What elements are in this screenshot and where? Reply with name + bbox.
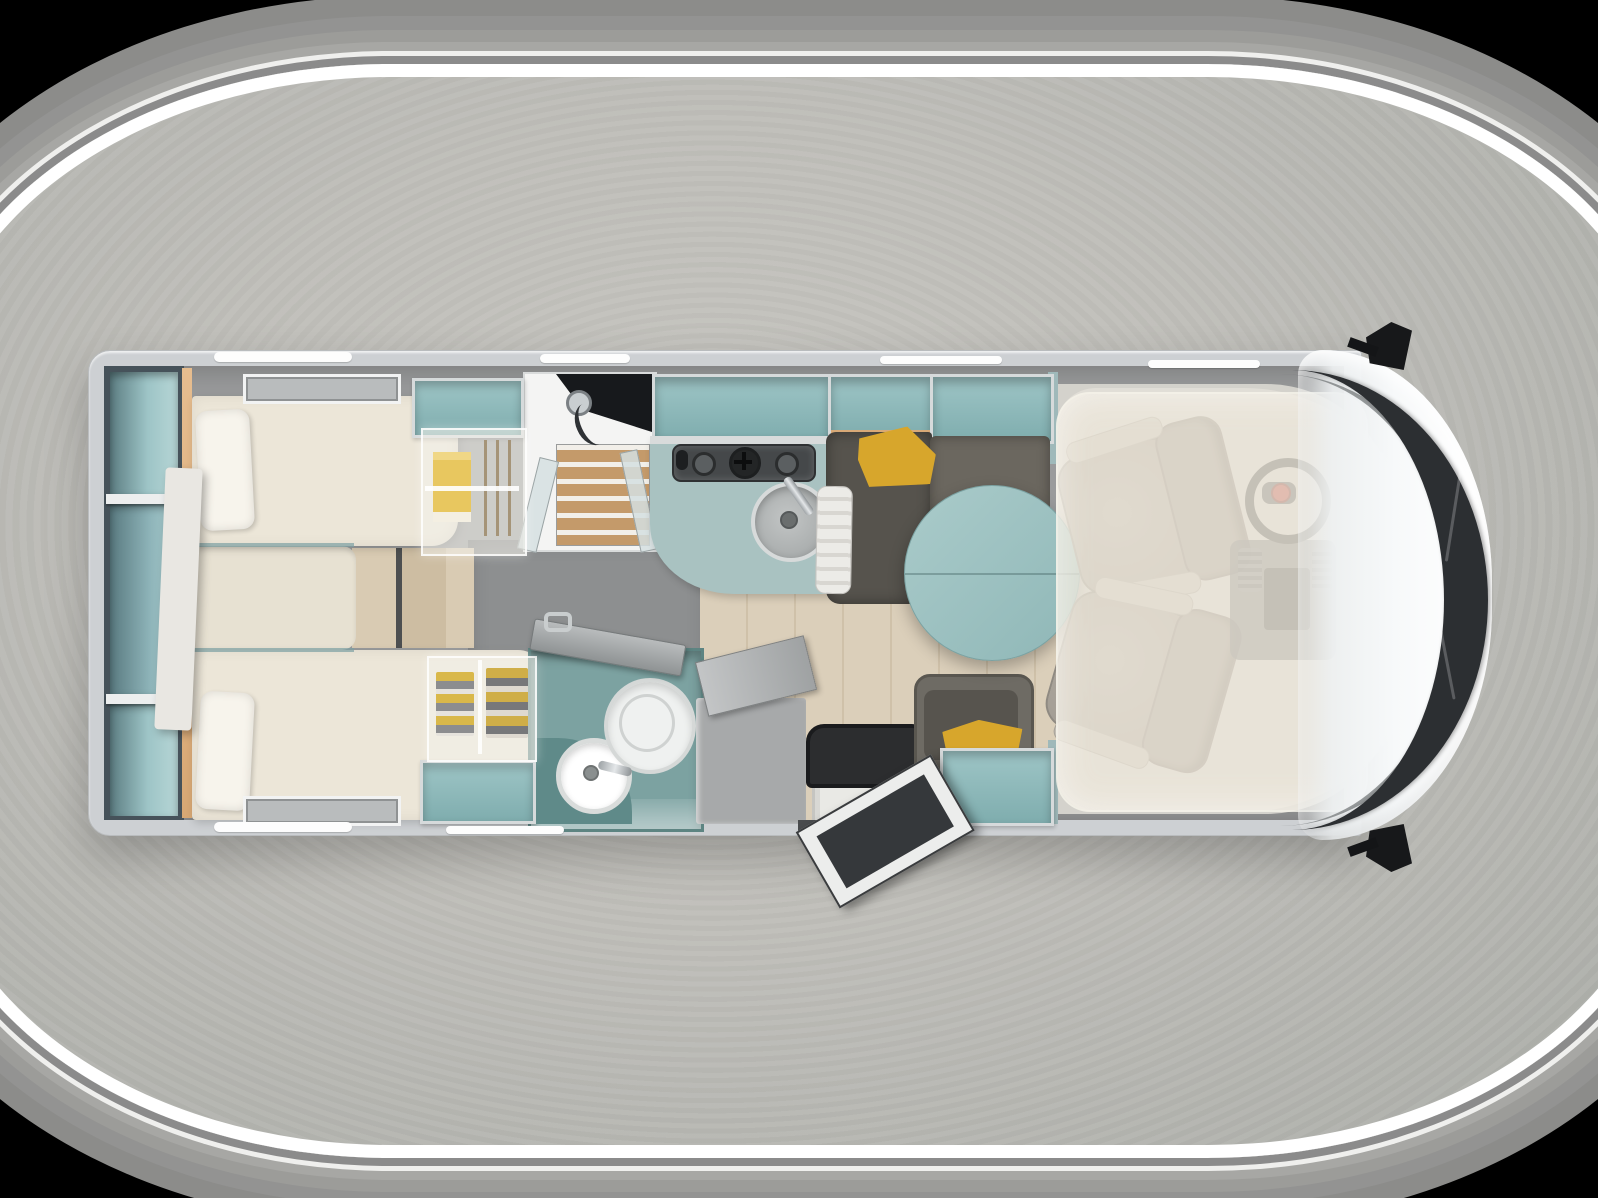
sofa-armrest-cushion <box>815 486 853 595</box>
basin-drain <box>583 765 599 781</box>
sink-drain <box>780 511 798 529</box>
overhead-cabinet-wood-shelf <box>828 374 934 440</box>
door-handle <box>544 612 572 632</box>
burner <box>775 452 799 476</box>
fridge-cabinet <box>696 698 806 824</box>
wall-window-slit <box>214 352 352 362</box>
bed-edge-trim <box>192 543 354 547</box>
burner <box>729 447 761 479</box>
wall-window-slit <box>880 356 1002 364</box>
center-step-cushion <box>192 546 356 650</box>
dinette-round-table <box>904 485 1080 661</box>
burner <box>692 452 716 476</box>
pillow <box>195 691 255 812</box>
overbed-locker <box>420 760 536 824</box>
wardrobe-shelf <box>425 486 519 491</box>
toilet <box>604 678 696 774</box>
wall-window-slit <box>214 822 352 832</box>
hob-control <box>676 450 688 470</box>
hanging-clothes <box>436 672 474 736</box>
wall-window-slit <box>1148 360 1260 368</box>
wall-window-slit <box>540 354 630 363</box>
pillow <box>195 409 255 532</box>
wardrobe-divider <box>478 660 482 754</box>
wall-window-slit <box>446 826 564 834</box>
overhead-cabinet-kitchen <box>652 374 832 442</box>
overhead-cabinet-dinette <box>930 374 1054 444</box>
hanging-clothes <box>486 668 528 738</box>
window-blind-top <box>243 374 401 404</box>
bed-edge-trim <box>192 648 354 652</box>
motorhome-floorplan-render <box>0 0 1598 1198</box>
between-beds-wood-floor <box>352 548 474 648</box>
